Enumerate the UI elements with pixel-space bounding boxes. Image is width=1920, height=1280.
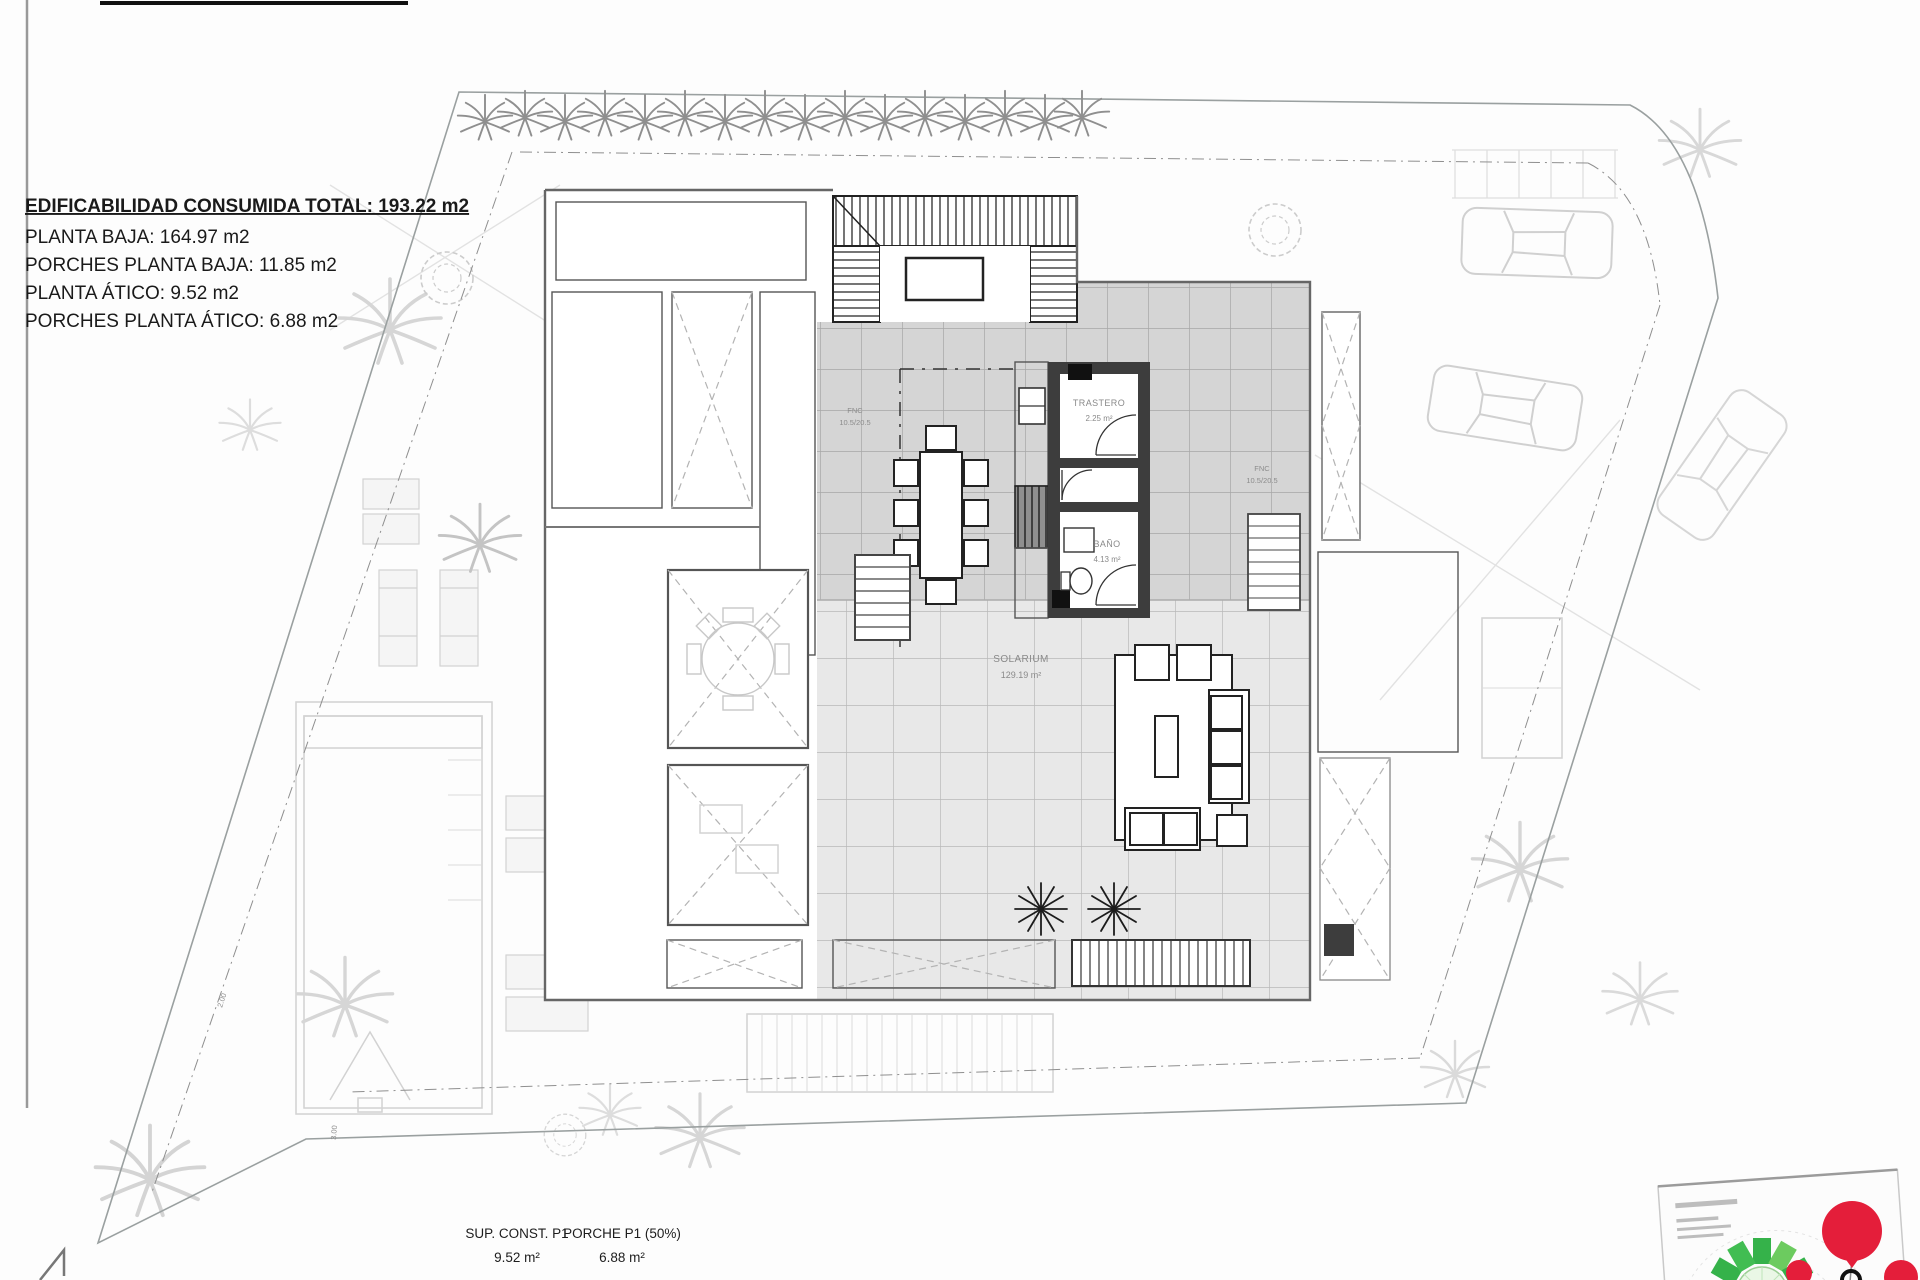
solarium-area: 129.19 m² — [1001, 670, 1042, 680]
title-stamp — [1658, 1170, 1918, 1280]
lounge-set — [1115, 645, 1249, 850]
roof-hatch-opening — [906, 258, 983, 300]
dim-fnc-right-1: FNC — [1254, 464, 1270, 473]
pergola-round-table — [668, 570, 808, 748]
building-roof-plan — [545, 190, 1310, 1000]
annotation-line: PLANTA ÁTICO: 9.52 m2 — [25, 283, 239, 304]
dim-fnc-left-2: 10.5/20.5 — [839, 418, 870, 427]
floor-plan-sheet: EDIFICABILIDAD CONSUMIDA TOTAL: 193.22 m… — [0, 0, 1920, 1280]
dim-fnc-right-2: 10.5/20.5 — [1246, 476, 1277, 485]
trastero-label: TRASTERO — [1073, 398, 1125, 408]
bano-label: BAÑO — [1093, 539, 1120, 549]
ghost-car — [1426, 364, 1584, 453]
east-green-planter — [1318, 552, 1458, 752]
dim-fnc-left-1: FNC — [847, 406, 863, 415]
solarium-stair — [1072, 940, 1250, 986]
terrace-stair-left — [855, 555, 910, 640]
interior-stair — [1015, 486, 1048, 548]
courtyard-pergolas — [667, 570, 808, 988]
stair-bulkhead — [833, 196, 1077, 322]
annotation-line: PLANTA BAJA: 164.97 m2 — [25, 227, 250, 248]
footer-col1-label: SUP. CONST. P1 — [465, 1226, 568, 1241]
solarium-label: SOLARIUM — [993, 654, 1048, 665]
pergola-square — [668, 765, 808, 925]
sheet-frame — [27, 0, 408, 1280]
toilet — [1061, 568, 1092, 594]
terrace-stair-right — [1248, 514, 1300, 610]
ghost-entry-stair — [747, 1014, 1053, 1092]
footer-area-table: SUP. CONST. P1 9.52 m² PORCHE P1 (50%) 6… — [465, 1226, 681, 1265]
annotation-line: PORCHES PLANTA ÁTICO: 6.88 m2 — [25, 311, 338, 332]
ghost-car — [1652, 385, 1792, 546]
bano-area: 4.13 m² — [1093, 555, 1120, 564]
dim-left: 2.00 — [215, 992, 228, 1009]
footer-col2-label: PORCHE P1 (50%) — [563, 1226, 681, 1241]
ghost-car — [1461, 207, 1613, 278]
north-arrow-icon — [40, 1250, 64, 1280]
annotation-line: PORCHES PLANTA BAJA: 11.85 m2 — [25, 255, 337, 276]
trastero-area: 2.25 m² — [1085, 414, 1112, 423]
ghost-pool — [296, 702, 492, 1114]
dim-bottom: 3.00 — [329, 1125, 339, 1140]
site-plan-drawing: EDIFICABILIDAD CONSUMIDA TOTAL: 193.22 m… — [0, 0, 1920, 1280]
footer-col2-value: 6.88 m² — [599, 1250, 645, 1265]
washbasin — [1064, 528, 1094, 552]
edificability-title: EDIFICABILIDAD CONSUMIDA TOTAL: 193.22 m… — [25, 196, 469, 217]
footer-col1-value: 9.52 m² — [494, 1250, 540, 1265]
ghost-parking — [1426, 150, 1792, 545]
east-planters — [1318, 312, 1458, 980]
